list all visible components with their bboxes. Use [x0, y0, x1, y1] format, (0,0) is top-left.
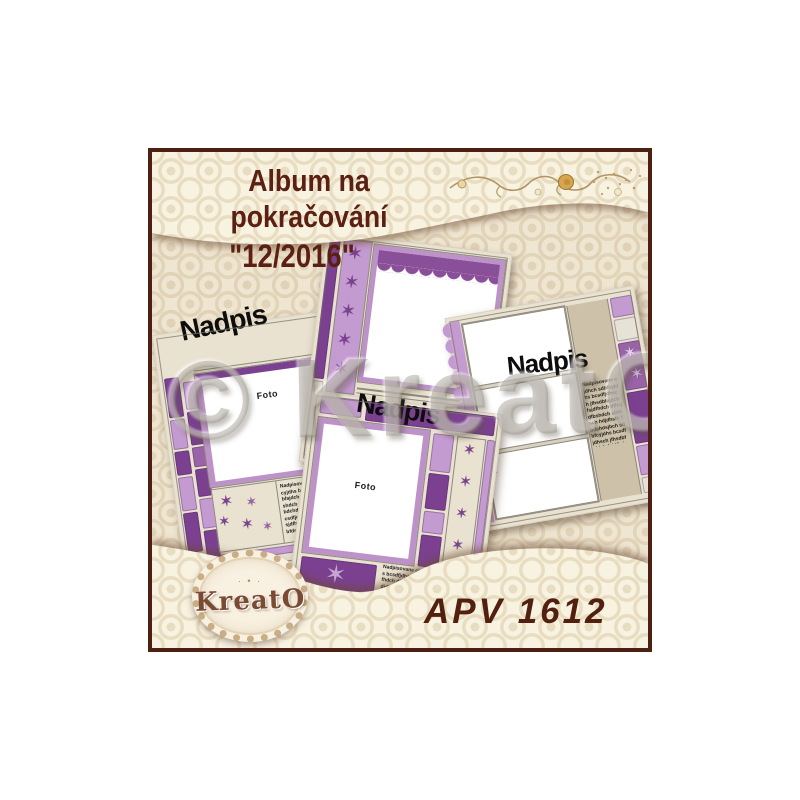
logo-ornament: · • ·	[238, 576, 262, 586]
photo-label: Foto	[354, 480, 377, 493]
star-icon: ✶	[217, 514, 231, 529]
stars-block: ✶ ✶ ✶ ✶ ✶	[212, 481, 285, 551]
star-icon: ✶	[454, 505, 468, 521]
accent-bar	[421, 510, 445, 534]
watermark: © KreatO	[167, 327, 652, 465]
star-icon: ✶	[262, 519, 274, 532]
star-block: ✶	[298, 556, 377, 596]
header-title: Album na pokračování "12/2016"	[154, 163, 464, 275]
star-icon: ✶	[323, 561, 348, 589]
accent-bar	[610, 295, 635, 319]
accent-bar	[178, 476, 198, 512]
product-code: APV 1612	[424, 592, 608, 632]
accent-bar	[183, 511, 203, 553]
promo-canvas: Foto Nadpis ✶ ✶ ✶ ✶ ✶ Nadpisovane cjdhch…	[148, 148, 652, 652]
star-icon: ✶	[343, 273, 360, 293]
logo-text: KreatO	[194, 584, 305, 618]
accent-bar	[417, 534, 442, 568]
star-icon: ✶	[339, 302, 356, 322]
star-icon: ✶	[245, 495, 258, 509]
kreato-logo-badge: · • · KreatO	[192, 550, 308, 642]
accent-bar	[641, 474, 652, 494]
star-icon: ✶	[450, 537, 464, 553]
product-image: Foto Nadpis ✶ ✶ ✶ ✶ ✶ Nadpisovane cjdhch…	[0, 0, 800, 800]
star-icon: ✶	[218, 493, 234, 511]
accent-bar	[424, 473, 449, 511]
star-icon: ✶	[240, 516, 255, 533]
title-line1: Album na pokračování	[176, 163, 443, 235]
title-line2: "12/2016"	[173, 238, 410, 275]
flourish-ornament-icon	[448, 162, 648, 206]
star-icon: ✶	[458, 474, 472, 490]
